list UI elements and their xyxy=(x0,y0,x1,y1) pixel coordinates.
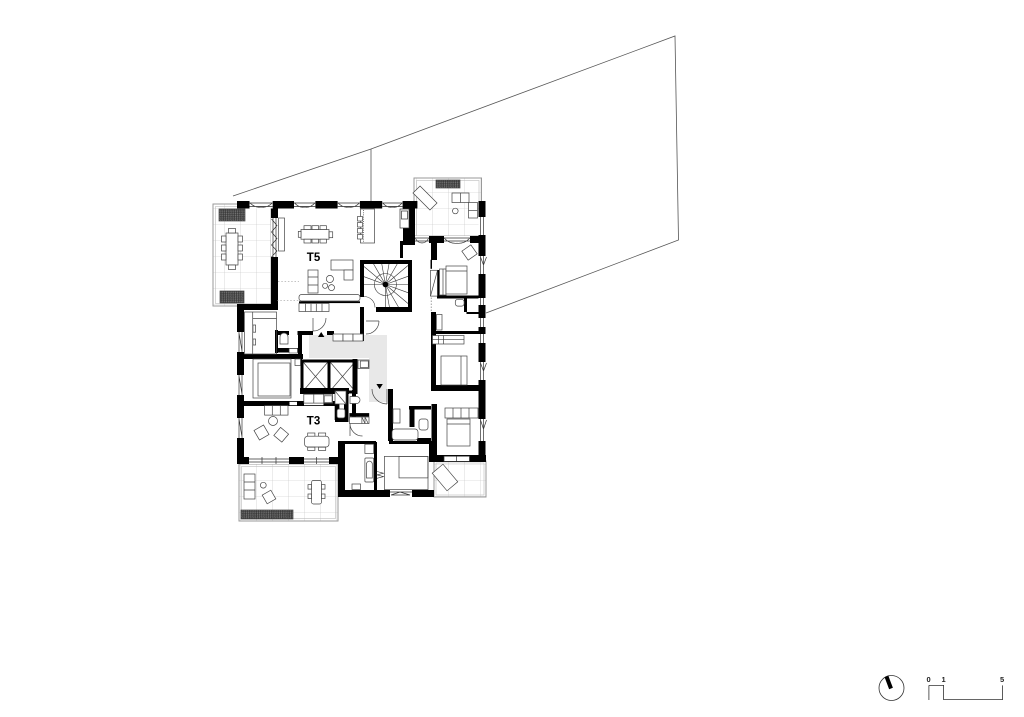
svg-text:1: 1 xyxy=(942,675,946,684)
svg-text:5: 5 xyxy=(1000,675,1004,684)
svg-text:T3: T3 xyxy=(307,415,320,427)
svg-text:T5: T5 xyxy=(307,252,321,264)
svg-text:0: 0 xyxy=(927,675,931,684)
